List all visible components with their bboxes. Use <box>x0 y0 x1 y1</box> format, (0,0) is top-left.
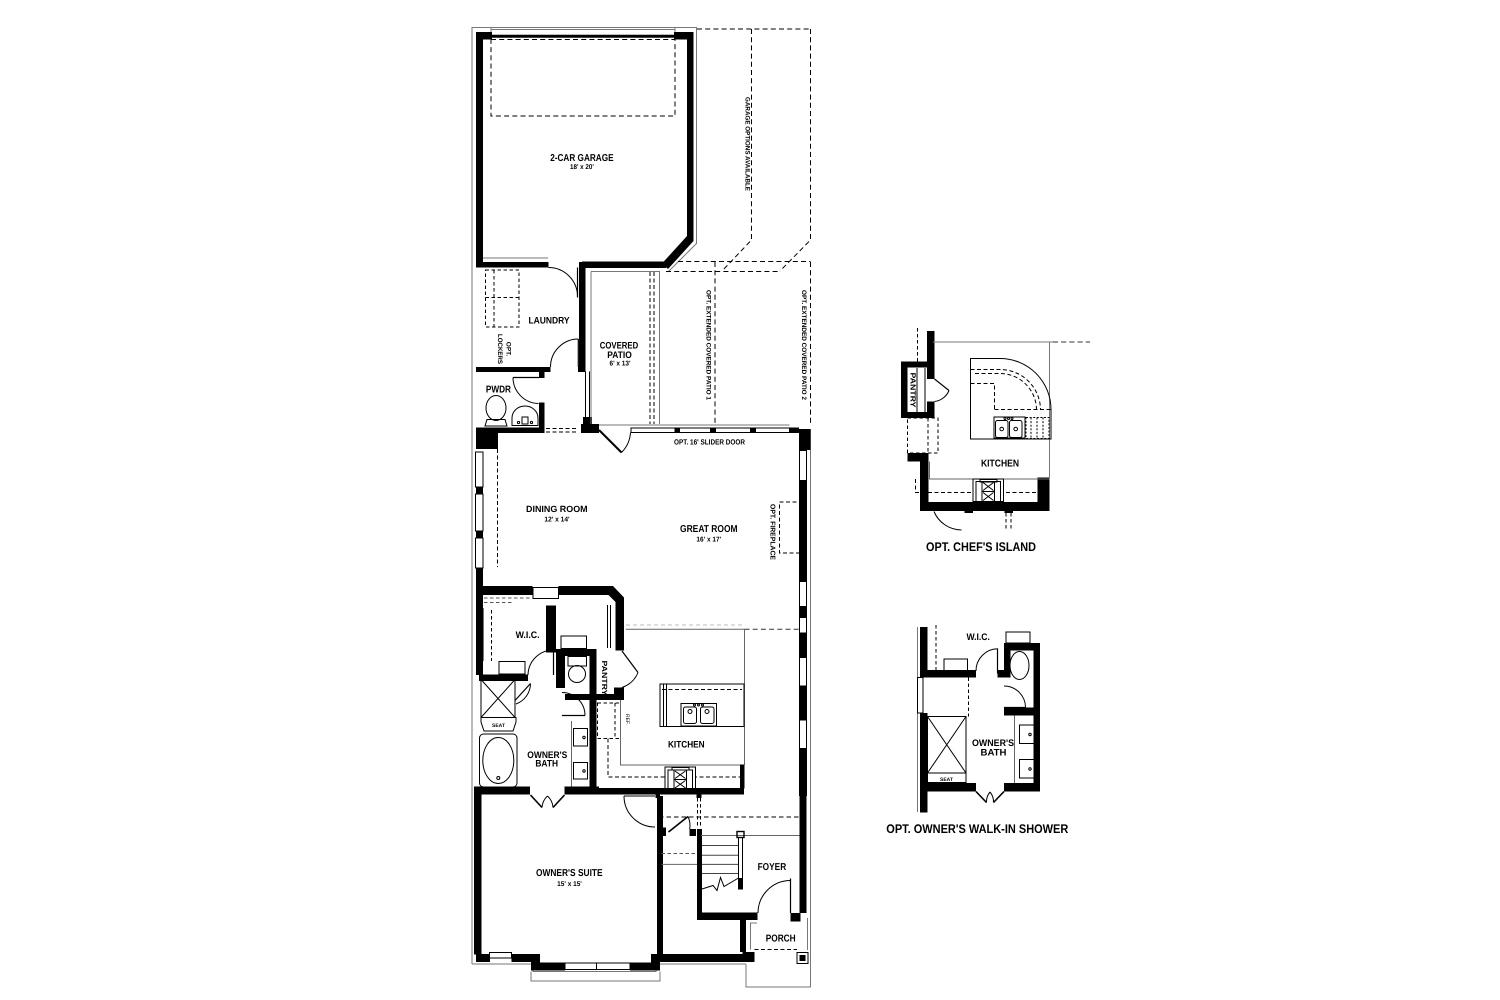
svg-text:OPT. CHEF'S ISLAND: OPT. CHEF'S ISLAND <box>926 540 1036 554</box>
svg-text:GARAGE OPTIONS AVAILABLE: GARAGE OPTIONS AVAILABLE <box>744 97 751 192</box>
svg-text:OPT. FIREPLACE: OPT. FIREPLACE <box>769 504 776 560</box>
svg-text:OPT. OWNER'S WALK-IN SHOWER: OPT. OWNER'S WALK-IN SHOWER <box>886 822 1068 836</box>
svg-text:PANTRY: PANTRY <box>909 373 918 408</box>
svg-text:SEAT: SEAT <box>940 777 953 783</box>
svg-text:BATH: BATH <box>981 748 1007 759</box>
svg-text:OPT. EXTENDED COVERED PATIO 2: OPT. EXTENDED COVERED PATIO 2 <box>800 290 807 400</box>
svg-text:12' x 14': 12' x 14' <box>544 517 570 524</box>
svg-text:PATIO: PATIO <box>607 350 632 361</box>
svg-text:6' x 13': 6' x 13' <box>610 361 631 368</box>
svg-text:OPT. 16' SLIDER DOOR: OPT. 16' SLIDER DOOR <box>674 438 745 447</box>
svg-text:15' x 15': 15' x 15' <box>557 881 582 888</box>
svg-text:PORCH: PORCH <box>766 934 796 945</box>
svg-text:FOYER: FOYER <box>758 862 787 873</box>
svg-text:KITCHEN: KITCHEN <box>981 459 1019 470</box>
svg-text:LAUNDRY: LAUNDRY <box>528 315 570 326</box>
svg-text:2-CAR GARAGE: 2-CAR GARAGE <box>550 153 614 164</box>
svg-text:REF.: REF. <box>624 714 630 725</box>
svg-text:GREAT ROOM: GREAT ROOM <box>680 524 738 535</box>
svg-text:BATH: BATH <box>535 759 558 770</box>
svg-text:16' x 17': 16' x 17' <box>696 537 721 544</box>
svg-text:OPT. EXTENDED COVERED PATIO 1: OPT. EXTENDED COVERED PATIO 1 <box>705 290 712 400</box>
svg-text:PWDR: PWDR <box>486 385 512 396</box>
svg-text:W.I.C.: W.I.C. <box>966 632 990 643</box>
svg-text:OPT.: OPT. <box>505 342 512 357</box>
svg-text:W.I.C.: W.I.C. <box>516 630 540 641</box>
svg-text:DINING ROOM: DINING ROOM <box>526 504 588 514</box>
svg-text:PANTRY: PANTRY <box>600 661 609 696</box>
svg-text:18' x 20': 18' x 20' <box>570 164 594 171</box>
svg-text:LOCKERS: LOCKERS <box>496 334 503 365</box>
svg-text:SEAT: SEAT <box>492 723 505 729</box>
svg-text:OWNER'S SUITE: OWNER'S SUITE <box>536 868 603 879</box>
svg-text:KITCHEN: KITCHEN <box>668 739 705 750</box>
